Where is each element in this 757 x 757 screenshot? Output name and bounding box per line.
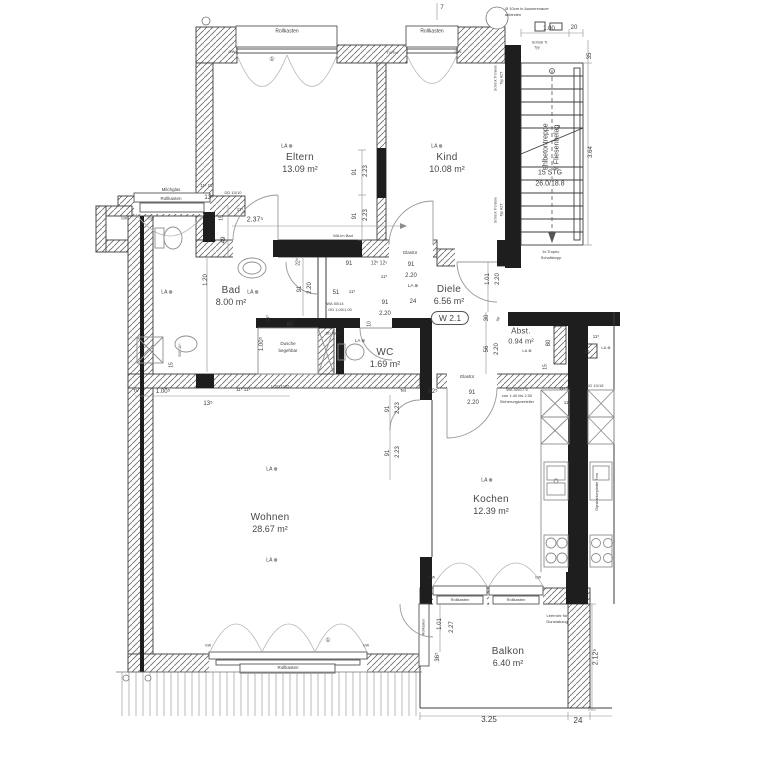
annotation-label: ① bbox=[325, 638, 330, 644]
annotation-label: Rollkasten bbox=[275, 30, 298, 35]
annotation-label: 35 bbox=[587, 53, 593, 60]
annotation-label: GW bbox=[455, 50, 462, 54]
annotation-label: Schöck Tronsole bbox=[494, 65, 498, 91]
annotation-label: Schöck Tronsole bbox=[494, 197, 498, 223]
room-label-balkon: Balkon 6.40 m² bbox=[492, 646, 524, 668]
room-area: 0.94 m² bbox=[508, 337, 533, 346]
annotation-label: 80 bbox=[287, 322, 294, 328]
annotation-label: 51 bbox=[333, 290, 340, 296]
annotation-label: 24 bbox=[410, 299, 417, 305]
annotation-label: 2.20 bbox=[495, 273, 501, 285]
annotation-label: 2.20 bbox=[494, 343, 500, 355]
annotation-label: GW bbox=[429, 576, 435, 580]
room-name: Balkon bbox=[492, 646, 524, 657]
annotation-label: 91 bbox=[352, 213, 358, 220]
annotation-label: 11⁵ bbox=[593, 335, 600, 340]
room-name: Bad bbox=[216, 285, 247, 296]
annotation-label: 50⁵-11⁵ bbox=[178, 343, 182, 356]
annotation-label: 3.64 bbox=[588, 146, 594, 158]
annotation-label: LA ⊗ bbox=[601, 346, 610, 350]
annotation-label: 12⁰ 12⁵ bbox=[371, 262, 388, 267]
annotation-label: GW bbox=[535, 576, 541, 580]
annotation-label: 3.25 bbox=[481, 716, 497, 724]
annotation-label: Glastür bbox=[403, 251, 418, 256]
room-label-diele: Diele 6.56 m² bbox=[434, 284, 465, 306]
room-label-abst: Abst. 0.94 m² bbox=[508, 327, 533, 346]
annotation-label: 1.01 bbox=[437, 618, 443, 630]
annotation-label: Typ AZT bbox=[500, 203, 504, 216]
room-area: 13.09 m² bbox=[282, 164, 318, 174]
annotation-label: DD 10/10 bbox=[326, 332, 341, 336]
room-area: 10.08 m² bbox=[429, 164, 465, 174]
annotation-label: 11⁵ bbox=[237, 208, 244, 213]
annotation-label: 11⁵ 3⁵ bbox=[559, 387, 571, 392]
room-label-kochen: Kochen 12.39 m² bbox=[473, 494, 509, 516]
annotation-label: Glastür bbox=[460, 375, 475, 380]
annotation-label: 1.00 bbox=[543, 26, 555, 32]
annotation-label: Rollkasten bbox=[422, 619, 426, 635]
annotation-label: 15 bbox=[170, 362, 175, 368]
annotation-label: 2.27 bbox=[449, 621, 455, 633]
annotation-label: 7 bbox=[440, 5, 443, 11]
annotation-label: 22⁰ bbox=[297, 258, 302, 266]
room-name: Kochen bbox=[473, 494, 509, 505]
room-area: 12.39 m² bbox=[473, 506, 509, 516]
annotation-label: 91 bbox=[346, 261, 353, 267]
annotation-label: 10 bbox=[368, 321, 373, 327]
annotation-label: Typ AZT bbox=[500, 71, 504, 84]
annotation-label: 13⁵ bbox=[204, 195, 213, 201]
annotation-label: 20 bbox=[571, 25, 578, 31]
annotation-label: Tel bbox=[400, 389, 406, 394]
annotation-label: bi-Tropec bbox=[543, 250, 560, 254]
room-label-eltern: Eltern 13.09 m² bbox=[282, 152, 318, 174]
annotation-label: 91 bbox=[352, 169, 358, 176]
annotation-label: 15 bbox=[544, 364, 549, 370]
stair-material-label-line2: mit Fliesenbelag bbox=[554, 125, 561, 176]
room-area: 1.69 m² bbox=[370, 359, 401, 369]
room-name: Abst. bbox=[508, 327, 533, 336]
stair-ratio-label: 26.0/18.8 bbox=[534, 181, 565, 188]
annotation-label: 91 bbox=[469, 390, 476, 396]
annotation-label: LA ⊗ bbox=[431, 145, 442, 150]
annotation-label: 1.00⁵ bbox=[259, 337, 265, 351]
annotation-label: LA ⊗ bbox=[266, 468, 277, 473]
annotation-label: 1¹ DD 10/15 bbox=[271, 385, 290, 389]
annotation-label: 2.12⁵ bbox=[593, 649, 600, 666]
annotation-label: 15 bbox=[584, 350, 589, 355]
annotation-label: Schallstopp bbox=[541, 256, 562, 260]
annotation-label: 2.20 bbox=[307, 282, 313, 294]
room-name: Eltern bbox=[282, 152, 318, 163]
room-name: Kind bbox=[429, 152, 465, 163]
annotation-label: 11⁵ 11¹ bbox=[236, 388, 250, 393]
annotation-label: ① bbox=[269, 57, 274, 63]
annotation-label: 11⁵ bbox=[266, 315, 271, 322]
annotation-label: TV bbox=[133, 389, 139, 394]
annotation-label: 49 bbox=[221, 237, 227, 244]
annotation-label: LA ⊗ bbox=[281, 145, 292, 150]
annotation-label: GW bbox=[121, 217, 127, 221]
annotation-label: 2.20 bbox=[405, 273, 417, 279]
room-label-wc: WC 1.69 m² bbox=[370, 347, 401, 369]
annotation-label: DD 10/15 bbox=[587, 384, 604, 388]
annotation-label: WA im Bad bbox=[333, 234, 353, 238]
annotation-label: 62⁵ bbox=[428, 389, 437, 395]
annotation-label: 2.23 bbox=[363, 209, 369, 221]
annotation-label: GW bbox=[363, 644, 369, 648]
annotation-label: 91 bbox=[382, 300, 389, 306]
room-area: 6.40 m² bbox=[492, 658, 524, 668]
annotation-label: GW bbox=[205, 644, 211, 648]
annotation-label: 91 bbox=[408, 262, 415, 268]
annotation-label: Sp bbox=[496, 317, 500, 322]
annotation-label: Rollkasten bbox=[507, 598, 526, 602]
annotation-label: 80 bbox=[546, 340, 552, 347]
room-area: 8.00 m² bbox=[216, 297, 247, 307]
annotation-label: GW bbox=[148, 217, 154, 221]
annotation-label: Ø 10cm in Aussenmauer bbox=[505, 7, 549, 11]
annotation-label: Sicherungsverteiler bbox=[500, 400, 534, 404]
annotation-label: 91 bbox=[297, 286, 303, 293]
annotation-label: 15 bbox=[220, 215, 225, 221]
annotation-label: begehbar bbox=[278, 349, 297, 354]
room-area: 28.67 m² bbox=[251, 524, 290, 534]
annotation-label: LA ⊗ bbox=[355, 339, 365, 344]
room-label-bad: Bad 8.00 m² bbox=[216, 285, 247, 307]
annotation-label: LA ⊗ bbox=[266, 559, 277, 564]
annotation-label: 11¹ 11¹ bbox=[200, 184, 214, 189]
annotation-label: Dunstabzug bbox=[546, 620, 567, 624]
annotation-label: 30 bbox=[484, 315, 490, 322]
annotation-label: 13⁵ bbox=[203, 401, 212, 407]
room-label-wohnen: Wohnen 28.67 m² bbox=[251, 512, 290, 534]
annotation-label: 2.23 bbox=[395, 446, 401, 458]
annotation-label: 2.23 bbox=[395, 402, 401, 414]
annotation-label: LA ⊗ bbox=[481, 479, 492, 484]
annotation-label: Rollkasten bbox=[277, 666, 298, 671]
annotation-label: Dusche bbox=[280, 342, 295, 347]
annotation-label: LA ⊗ bbox=[522, 349, 531, 353]
annotation-label: 2.20 bbox=[379, 311, 391, 317]
annotation-label: Schöck Tr. bbox=[532, 41, 548, 45]
annotation-label: LA ⊗ bbox=[408, 284, 418, 289]
annotation-label: 1.01 bbox=[485, 273, 491, 285]
annotation-label: TV/Tel bbox=[386, 51, 397, 55]
annotation-label: 11⁵ bbox=[564, 401, 571, 406]
annotation-label: von 1.40 bis 2.00 bbox=[502, 394, 532, 398]
annotation-label: anbinden bbox=[505, 13, 521, 17]
annotation-label: LA ⊗ bbox=[161, 291, 172, 296]
annotation-label: 11⁵ bbox=[381, 275, 388, 280]
annotation-label: Rollkasten bbox=[160, 197, 181, 202]
annotation-label: WA 40x17.5 bbox=[506, 388, 527, 392]
apartment-number-badge: W 2.1 bbox=[431, 311, 469, 325]
annotation-label: 1.20 bbox=[203, 274, 209, 286]
room-area: 6.56 m² bbox=[434, 296, 465, 306]
room-name: WC bbox=[370, 347, 401, 358]
annotation-label: 11⁵ bbox=[349, 290, 356, 295]
annotation-label: Milchglas bbox=[162, 188, 181, 193]
annotation-label: 2.37⁵ bbox=[247, 217, 264, 224]
annotation-label: DD 10/10 bbox=[225, 191, 242, 195]
annotation-label: Leerrohr für bbox=[547, 614, 568, 618]
annotation-label: Rollkasten bbox=[420, 30, 443, 35]
annotation-label: OD 1.00/1.00 bbox=[328, 308, 352, 312]
annotation-label: GW bbox=[229, 50, 236, 54]
annotation-label: LA ⊗ bbox=[247, 291, 258, 296]
annotation-label: Typ bbox=[534, 46, 540, 50]
annotation-label: 2.23 bbox=[363, 165, 369, 177]
annotation-label: 1.00⁵ bbox=[156, 389, 170, 395]
annotation-label: 91 bbox=[385, 450, 391, 457]
room-name: Diele bbox=[434, 284, 465, 295]
room-label-kind: Kind 10.08 m² bbox=[429, 152, 465, 174]
annotation-label: WA 50/14 bbox=[326, 302, 343, 306]
annotation-label: 24 bbox=[574, 717, 583, 725]
floorplan-page: Eltern 13.09 m² Kind 10.08 m² Bad 8.00 m… bbox=[0, 0, 757, 757]
annotation-label: 56 bbox=[484, 346, 490, 353]
annotation-label: 91 bbox=[385, 406, 391, 413]
annotation-label: 36⁵ bbox=[435, 652, 441, 661]
annotation-label: Rollkasten bbox=[451, 598, 470, 602]
annotation-label: Gipskartonplatte 7cm bbox=[595, 473, 599, 511]
stair-steps-label: 15 STG bbox=[537, 170, 563, 177]
floorplan-drawing bbox=[0, 0, 757, 757]
room-name: Wohnen bbox=[251, 512, 290, 523]
annotation-label: 2.20 bbox=[467, 400, 479, 406]
